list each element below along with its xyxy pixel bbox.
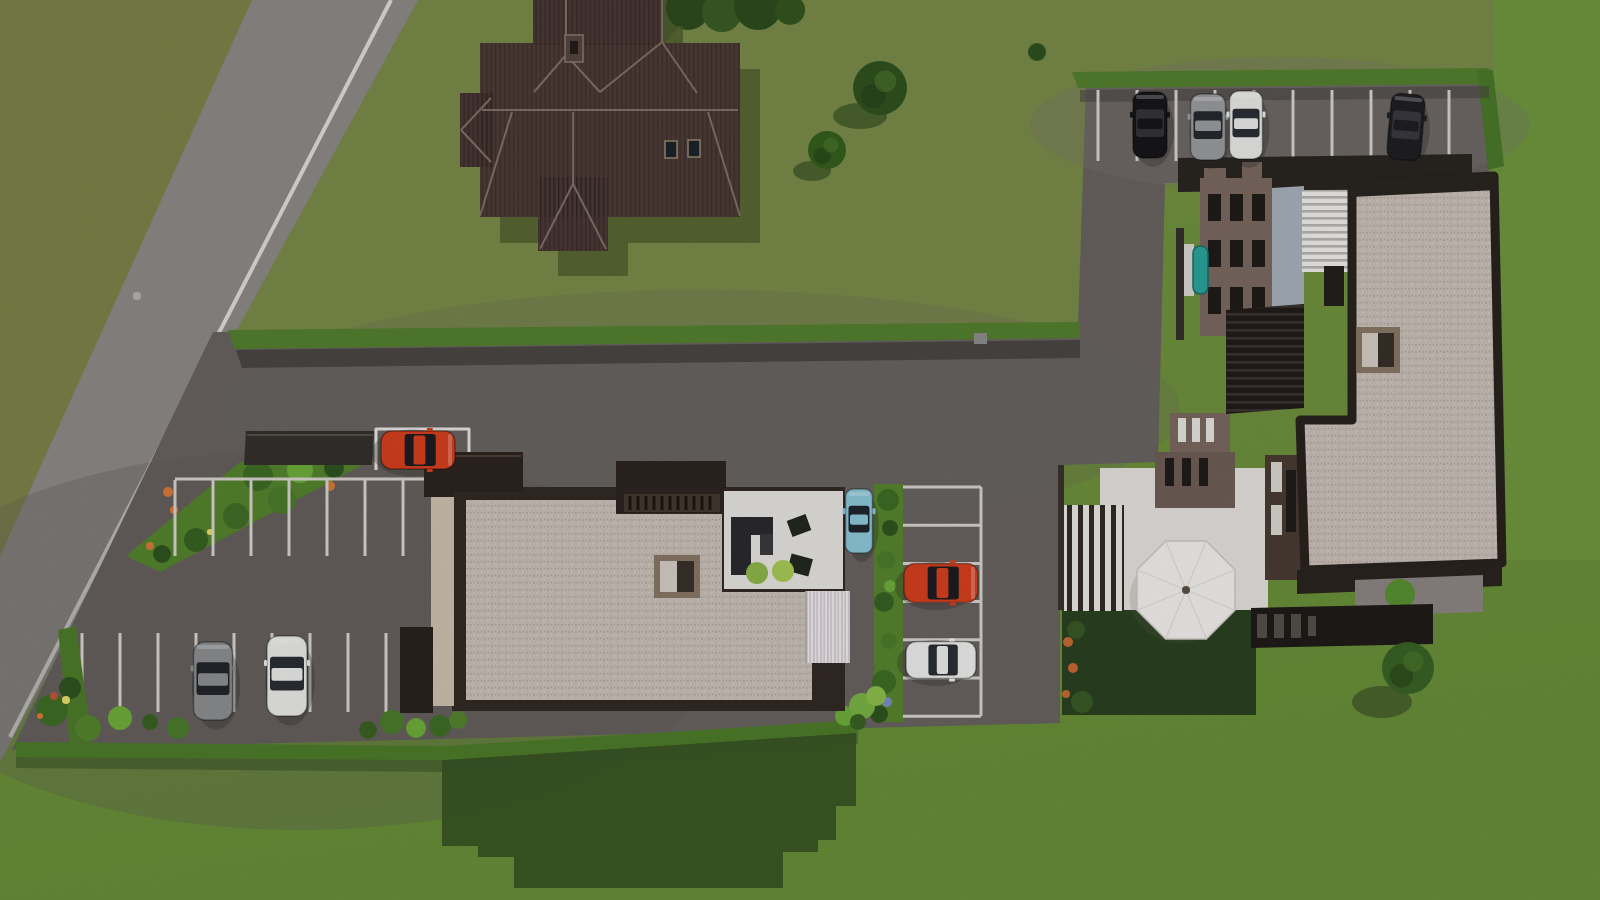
- grain-overlay: [0, 0, 1600, 900]
- site-plan-canvas: [0, 0, 1600, 900]
- aerial-render: [0, 0, 1600, 900]
